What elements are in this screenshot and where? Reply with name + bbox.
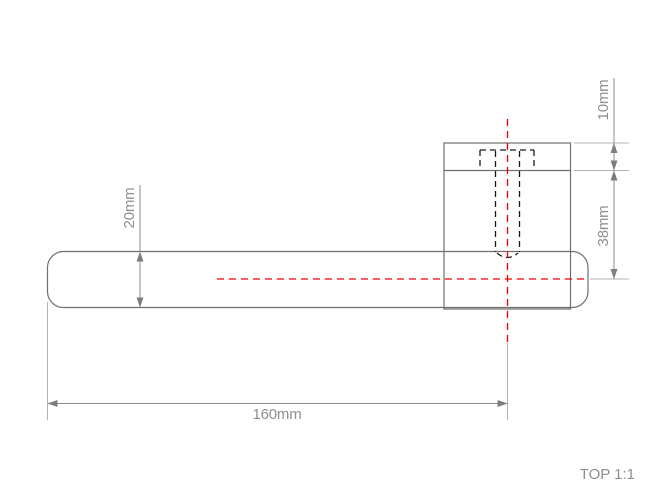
- dim-20mm-arrow-down: [137, 298, 144, 308]
- dim-10mm-arrow-down: [611, 161, 618, 171]
- dim-label-20mm: 20mm: [121, 158, 139, 258]
- view-scale-label: TOP 1:1: [555, 466, 635, 484]
- dim-label-10mm: 10mm: [595, 50, 613, 150]
- dim-label-160mm: 160mm: [227, 406, 327, 424]
- dim-label-38mm: 38mm: [595, 176, 613, 276]
- dim-160mm-arrow-right: [498, 400, 508, 407]
- dim-160mm-arrow-left: [48, 400, 58, 407]
- technical-drawing-canvas: 10mm 38mm 20mm 160mm TOP 1:1: [0, 0, 650, 500]
- drawing-geometry: [0, 0, 650, 500]
